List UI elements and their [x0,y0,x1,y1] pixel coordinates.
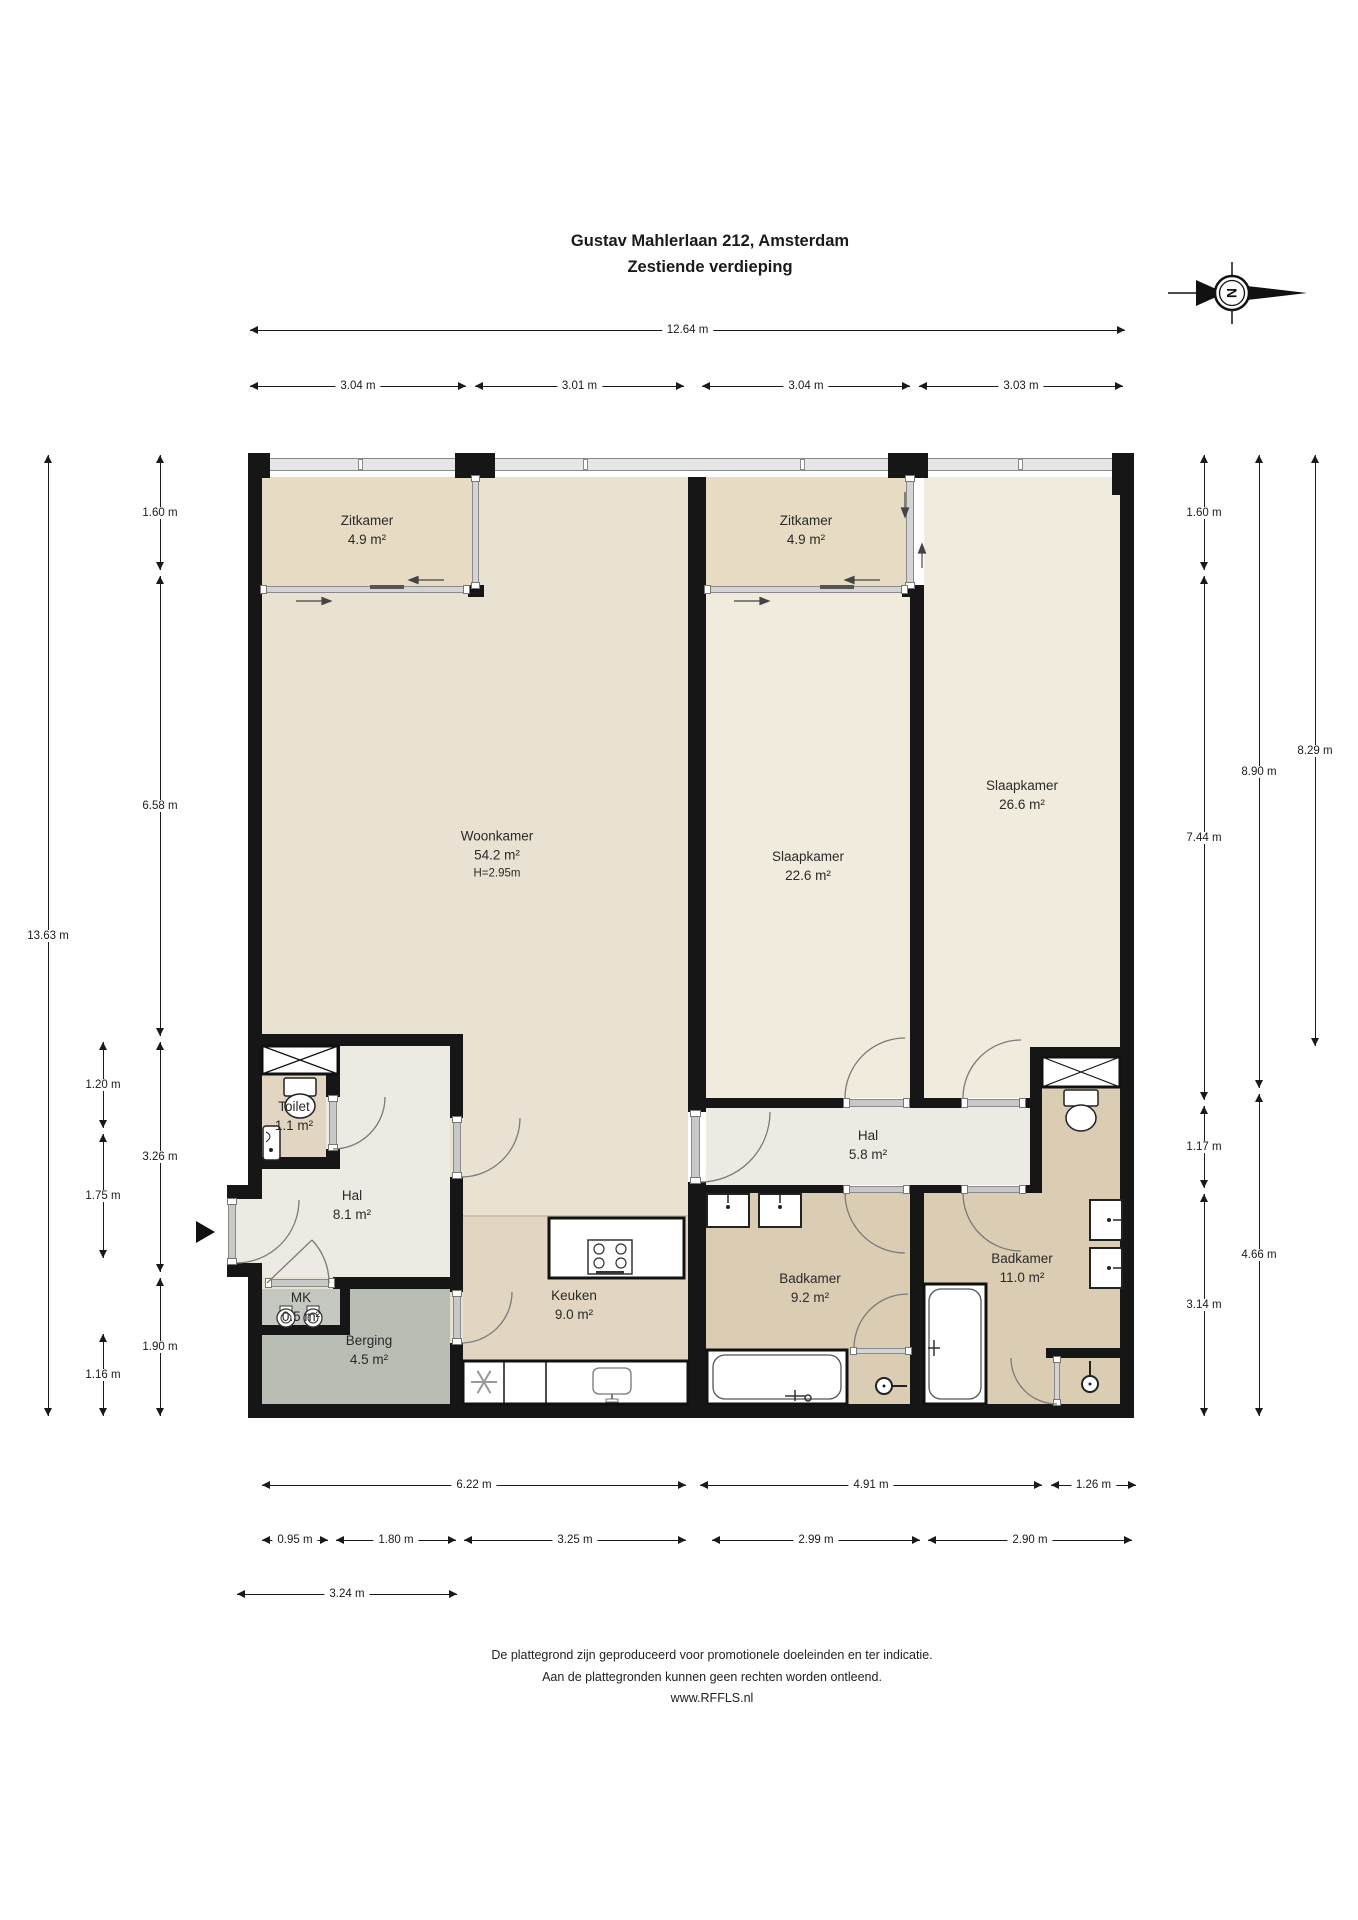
dimension-label: 6.22 m [451,1479,496,1491]
dimension-label: 1.80 m [373,1534,418,1546]
dimension-label: 8.29 m [1292,745,1337,757]
dimension: 3.03 m [919,382,1123,390]
door-arc-hal2-west [700,1112,770,1182]
hob-icon [588,1240,632,1274]
washbasins-left-icon [707,1194,801,1227]
room-area: 4.9 m² [341,530,394,549]
dimension-label: 6.58 m [137,800,182,812]
door-leaf-mk [267,1240,312,1283]
room-label-berging: Berging4.5 m² [346,1331,393,1369]
door-arc-slaapkamer-midden [845,1038,905,1098]
room-area: 8.1 m² [333,1205,371,1224]
dimension: 1.60 m [1200,455,1208,570]
room-label-badkamer-links: Badkamer9.2 m² [779,1269,841,1307]
room-label-keuken: Keuken9.0 m² [551,1286,597,1324]
dimension: 1.90 m [156,1278,164,1416]
room-name: Zitkamer [780,511,833,530]
kitchen-island [549,1218,684,1278]
dimension: 3.14 m [1200,1194,1208,1416]
door-arc-badkamer-rechts [963,1193,1021,1251]
dimension: 4.66 m [1255,1094,1263,1416]
room-area: 4.5 m² [346,1350,393,1369]
room-name: Slaapkamer [986,776,1058,795]
dimension-label: 3.04 m [335,380,380,392]
room-name: Zitkamer [341,511,394,530]
dimension: 12.64 m [250,326,1125,334]
dimension-label: 1.60 m [137,507,182,519]
shaft-left-icon [262,1046,338,1074]
dimension-label: 3.01 m [557,380,602,392]
dimension: 4.91 m [700,1481,1042,1489]
dimension-label: 4.66 m [1236,1249,1281,1261]
dimension-label: 7.44 m [1181,832,1226,844]
dimension: 6.22 m [262,1481,686,1489]
dimension-label: 1.90 m [137,1341,182,1353]
door-arc-woonkamer [461,1118,520,1177]
dimension-label: 3.26 m [137,1151,182,1163]
dimension: 3.04 m [702,382,910,390]
room-name: Badkamer [991,1249,1053,1268]
room-name: Hal [849,1126,887,1145]
dimension-label: 1.17 m [1181,1141,1226,1153]
door-arc-douche-rechts [1011,1358,1057,1404]
room-area: 5.8 m² [849,1145,887,1164]
room-area: 9.2 m² [779,1288,841,1307]
room-area: 26.6 m² [986,795,1058,814]
room-name: Woonkamer [461,827,534,846]
dimension-label: 13.63 m [22,930,74,942]
dimension: 3.04 m [250,382,466,390]
dimension-label: 3.25 m [552,1534,597,1546]
dimension-label: 1.16 m [80,1369,125,1381]
room-area: 1.1 m² [275,1116,313,1135]
room-label-zitkamer-links: Zitkamer4.9 m² [341,511,394,549]
dimension: 7.44 m [1200,576,1208,1100]
dimension-label: 12.64 m [662,324,714,336]
dimension: 1.75 m [99,1134,107,1258]
door-arc-entrance [236,1200,299,1263]
dimension-label: 3.24 m [324,1588,369,1600]
dimension-label: 3.14 m [1181,1299,1226,1311]
dimension: 8.90 m [1255,455,1263,1088]
room-name: Berging [346,1331,393,1350]
door-arc-keuken-berging [461,1292,512,1343]
room-label-hal: Hal8.1 m² [333,1186,371,1224]
dimension: 1.20 m [99,1042,107,1128]
dimension: 3.26 m [156,1042,164,1272]
dimension: 1.80 m [336,1536,456,1544]
shower-right-icon [1082,1361,1098,1392]
room-name: Slaapkamer [772,847,844,866]
floorplan-page: Gustav Mahlerlaan 212, Amsterdam Zestien… [0,0,1358,1920]
room-label-mk: MK0.5 m² [282,1288,320,1326]
room-label-woonkamer: Woonkamer54.2 m²H=2.95m [461,827,534,884]
bathtub-right-icon [924,1284,986,1404]
room-label-slaapkamer-rechts: Slaapkamer26.6 m² [986,776,1058,814]
dimension: 3.01 m [475,382,684,390]
dimension: 3.25 m [464,1536,686,1544]
room-name: Badkamer [779,1269,841,1288]
room-label-hal-2: Hal5.8 m² [849,1126,887,1164]
door-arc-toilet [333,1097,385,1149]
dimension-label: 2.90 m [1007,1534,1052,1546]
room-area: 0.5 m² [282,1307,320,1326]
room-area: 22.6 m² [772,866,844,885]
dimension: 3.24 m [237,1590,457,1598]
room-area: 11.0 m² [991,1268,1053,1287]
dimension: 2.90 m [928,1536,1132,1544]
dimension: 1.16 m [99,1334,107,1416]
dimension-label: 8.90 m [1236,766,1281,778]
room-area: 9.0 m² [551,1305,597,1324]
dimension: 8.29 m [1311,455,1319,1046]
entrance-arrow-icon [196,1221,215,1243]
dimension-label: 1.20 m [80,1079,125,1091]
kitchen-counter [463,1361,688,1404]
toilet-fixture-right-icon [1064,1090,1098,1131]
floorplan-vector-overlay: N [0,0,1358,1920]
dimension-label: 3.03 m [998,380,1043,392]
dimension: 6.58 m [156,576,164,1036]
dimension-label: 1.60 m [1181,507,1226,519]
room-name: MK [282,1288,320,1307]
dimension-label: 0.95 m [272,1534,317,1546]
door-arc-douche-links [854,1294,908,1348]
room-label-toilet: Toilet1.1 m² [275,1097,313,1135]
washbasins-right-icon [1090,1200,1122,1288]
dimension-label: 3.04 m [783,380,828,392]
door-arc-slaapkamer-rechts [963,1040,1021,1098]
dimension: 1.26 m [1051,1481,1136,1489]
dimension: 1.60 m [156,455,164,570]
compass-icon: N [1168,262,1307,324]
room-name: Toilet [275,1097,313,1116]
dimension-label: 2.99 m [793,1534,838,1546]
room-label-badkamer-rechts: Badkamer11.0 m² [991,1249,1053,1287]
shower-left-icon [876,1378,907,1394]
compass-letter: N [1224,288,1240,298]
door-arc-badkamer-links [845,1193,905,1253]
dimension-label: 1.75 m [80,1190,125,1202]
room-name: Keuken [551,1286,597,1305]
room-name: Hal [333,1186,371,1205]
room-label-slaapkamer-midden: Slaapkamer22.6 m² [772,847,844,885]
room-area: 4.9 m² [780,530,833,549]
room-label-zitkamer-midden: Zitkamer4.9 m² [780,511,833,549]
bathtub-left-icon [707,1350,847,1404]
room-ceiling-height: H=2.95m [461,865,534,884]
dimension-label: 4.91 m [848,1479,893,1491]
dimension: 1.17 m [1200,1106,1208,1188]
room-area: 54.2 m² [461,846,534,865]
dimension: 2.99 m [712,1536,920,1544]
door-arc-mk [312,1240,329,1283]
dimension: 0.95 m [262,1536,328,1544]
shaft-right-icon [1042,1057,1120,1087]
dimension-label: 1.26 m [1071,1479,1116,1491]
dimension: 13.63 m [44,455,52,1416]
